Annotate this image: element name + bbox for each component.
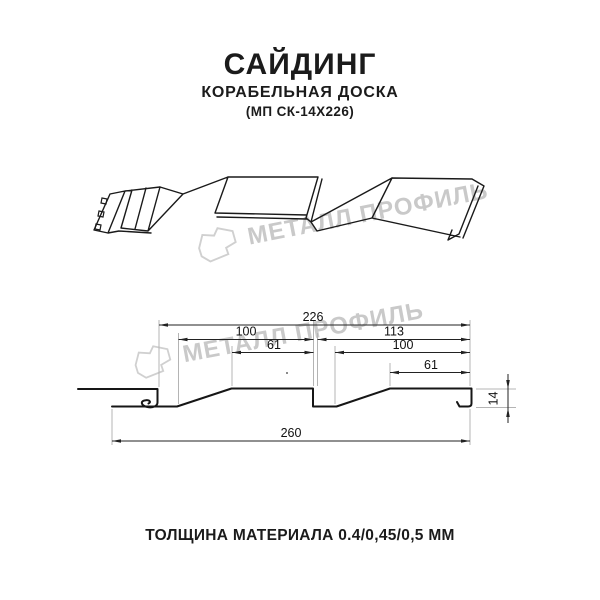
cross-section-view: 226 100 113 61 100 61 260 14 (78, 310, 516, 445)
dim-label-left-flat: 61 (267, 338, 281, 352)
dim-label-right-flat: 61 (424, 358, 438, 372)
stray-mark (286, 372, 288, 374)
dim-label-profile-height: 14 (487, 392, 501, 406)
dimension-lines (112, 325, 508, 441)
page-title: САЙДИНГ (0, 48, 600, 82)
dim-label-total-width: 260 (281, 426, 302, 440)
product-model-code: (МП СК-14Х226) (0, 104, 600, 119)
dim-label-left-pitch: 100 (236, 325, 257, 339)
product-subtitle: КОРАБЕЛЬНАЯ ДОСКА (0, 84, 600, 102)
dim-label-right-pitch: 113 (384, 325, 404, 339)
material-thickness-note: ТОЛЩИНА МАТЕРИАЛА 0.4/0,45/0,5 ММ (0, 527, 600, 545)
cross-section-profile (78, 389, 472, 408)
panel-3d-outline (94, 177, 484, 240)
panel-3d-view (94, 177, 484, 240)
extension-lines (112, 320, 516, 445)
product-drawing-page: САЙДИНГ КОРАБЕЛЬНАЯ ДОСКА (МП СК-14Х226)… (0, 0, 600, 600)
dim-label-overall-width: 226 (303, 310, 324, 324)
dimension-arrows (112, 323, 510, 443)
dim-label-right-inner: 100 (393, 338, 414, 352)
